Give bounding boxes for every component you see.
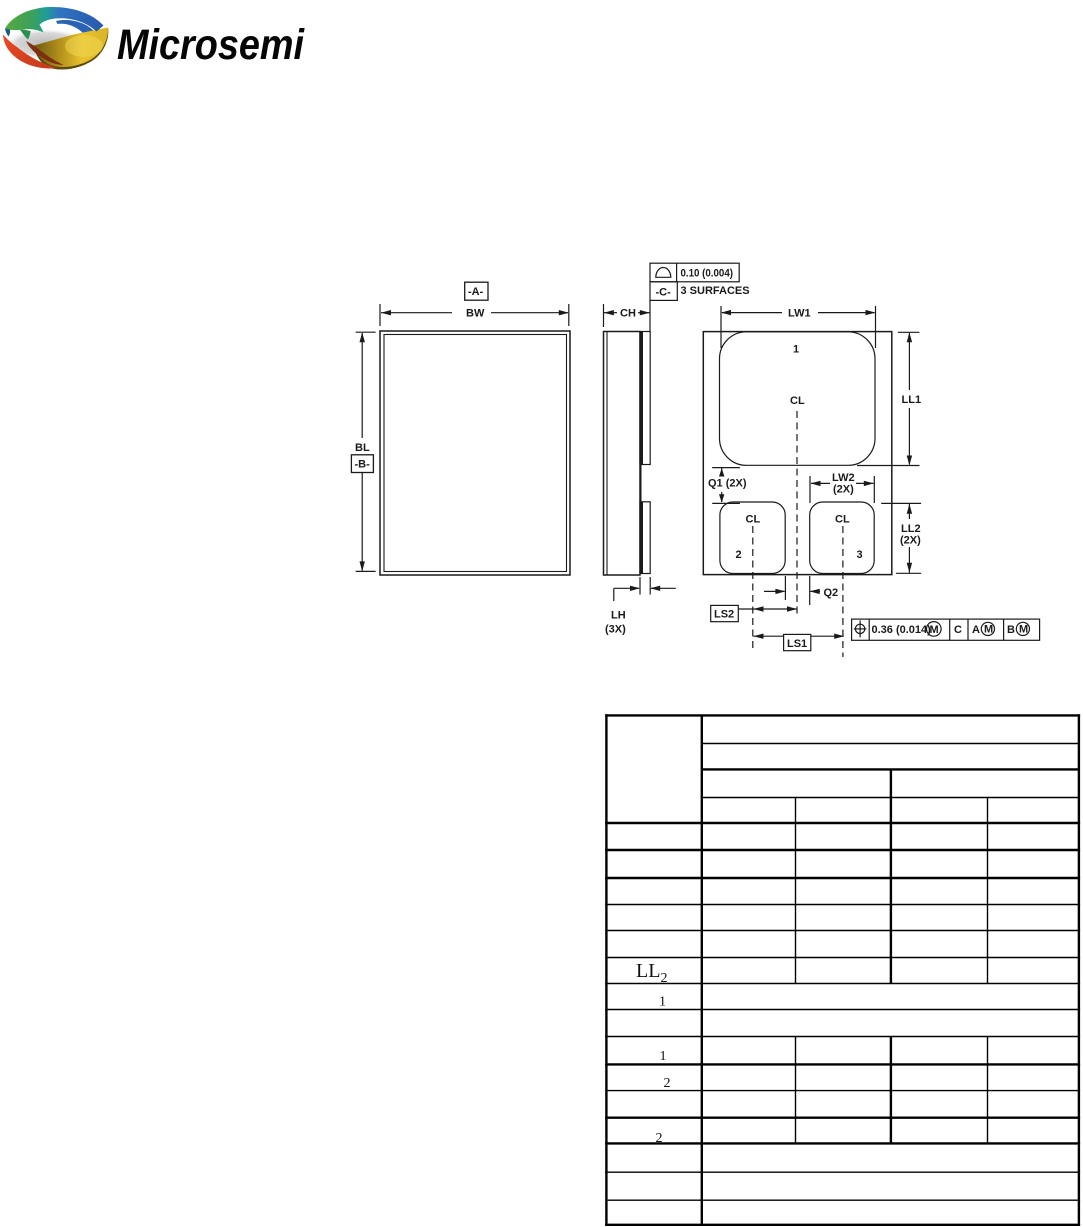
svg-text:-B-: -B- — [355, 459, 371, 471]
svg-text:2: 2 — [736, 549, 742, 561]
svg-text:(2X): (2X) — [900, 535, 921, 547]
svg-text:M: M — [1019, 624, 1028, 636]
svg-text:2: 2 — [656, 1131, 663, 1146]
svg-text:Microsemi: Microsemi — [117, 21, 305, 69]
svg-text:-A-: -A- — [468, 286, 484, 298]
svg-text:LL1: LL1 — [902, 394, 922, 406]
svg-text:CH: CH — [620, 308, 636, 320]
svg-text:M: M — [930, 624, 939, 636]
svg-text:(2X): (2X) — [833, 484, 854, 496]
svg-text:LW2: LW2 — [832, 472, 855, 484]
svg-text:BW: BW — [466, 308, 485, 320]
svg-text:CL: CL — [835, 514, 850, 526]
svg-text:2: 2 — [664, 1076, 671, 1091]
svg-text:Q2: Q2 — [824, 587, 839, 599]
svg-text:LL2: LL2 — [636, 960, 667, 986]
svg-text:BL: BL — [355, 442, 370, 454]
svg-text:3 SURFACES: 3 SURFACES — [681, 285, 750, 297]
svg-text:M: M — [984, 624, 993, 636]
svg-text:LW1: LW1 — [788, 308, 811, 320]
svg-text:CL: CL — [790, 395, 805, 407]
svg-text:CL: CL — [746, 514, 761, 526]
svg-text:(3X): (3X) — [605, 624, 626, 636]
svg-text:LS1: LS1 — [787, 638, 807, 650]
svg-text:B: B — [1007, 624, 1015, 636]
svg-text:LL2: LL2 — [901, 523, 921, 535]
svg-text:LH: LH — [611, 610, 626, 622]
svg-text:0.36 (0.014): 0.36 (0.014) — [872, 624, 932, 636]
svg-text:0.10 (0.004): 0.10 (0.004) — [681, 268, 734, 280]
svg-text:A: A — [972, 624, 980, 636]
svg-text:LS2: LS2 — [714, 609, 734, 621]
svg-text:3: 3 — [857, 549, 863, 561]
svg-text:1: 1 — [793, 344, 799, 356]
svg-text:-C-: -C- — [656, 287, 672, 299]
svg-text:C: C — [954, 624, 962, 636]
svg-text:1: 1 — [659, 995, 666, 1010]
svg-text:1: 1 — [660, 1049, 667, 1064]
svg-text:Q1 (2X): Q1 (2X) — [708, 478, 747, 490]
